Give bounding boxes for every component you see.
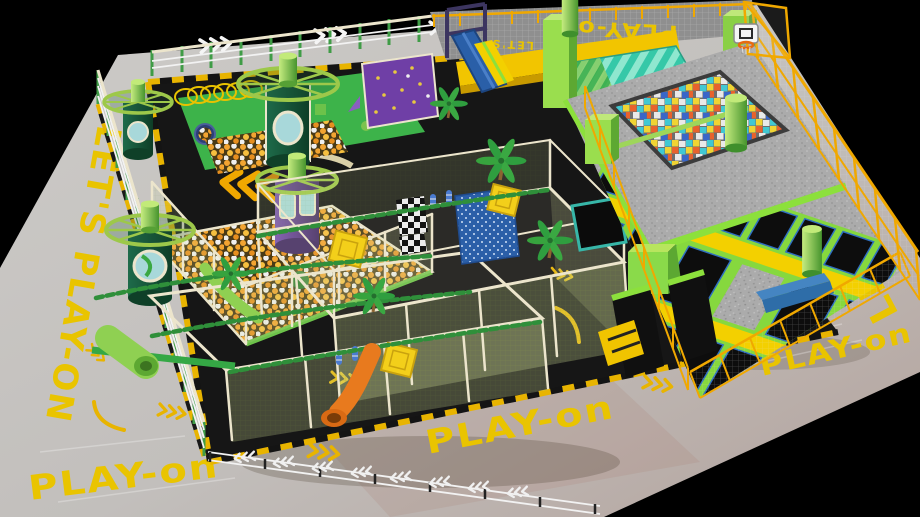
render-canvas: LET'S PLAY-ON LET'S PLAY-on PLAY-on PLAY… xyxy=(0,0,920,517)
foam-cylinder-1 xyxy=(562,0,579,37)
playground-scene: LET'S PLAY-ON LET'S PLAY-on PLAY-on PLAY… xyxy=(0,0,920,517)
checker-mat xyxy=(396,196,428,236)
climbing-wall xyxy=(362,54,438,128)
green-cylinder-2 xyxy=(802,225,822,278)
green-cylinder-1 xyxy=(725,94,747,153)
